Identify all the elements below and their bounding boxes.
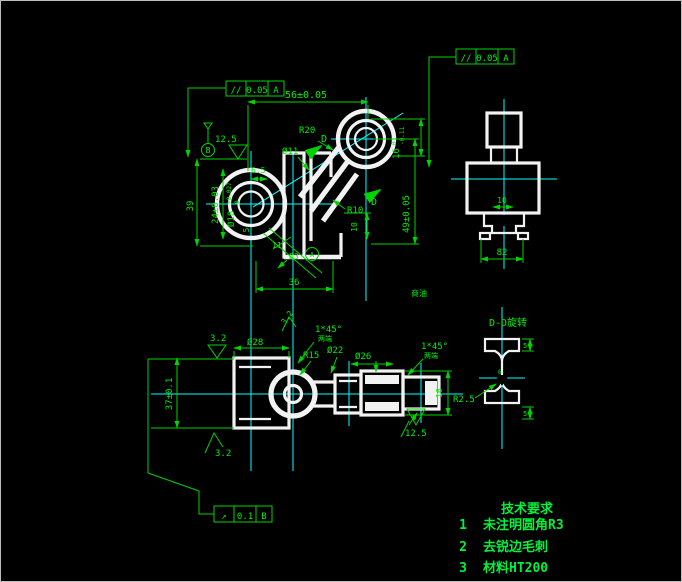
dia-26: Ø26 <box>355 351 371 362</box>
chamfer-2: 1*45° <box>421 342 448 352</box>
bore-upper-tol: +0.027 <box>226 182 233 204</box>
fcf-tr-symbol: // <box>461 54 472 64</box>
fcf-tl-symbol: // <box>231 86 242 96</box>
tech-item-1-text: 未注明圆角R3 <box>482 517 564 533</box>
dim-56: 56±0.05 <box>285 90 327 101</box>
tech-item-2-no: 2 <box>459 540 467 555</box>
fcf-bl-datum: B <box>261 512 266 522</box>
fcf-tr-datum: A <box>503 54 509 64</box>
radius-r15: R15 <box>303 351 319 361</box>
fcf-top-left: // 0.05 A <box>188 81 284 157</box>
dia-11: Ø11 <box>282 146 298 157</box>
dim-49-text: 49±0.05 <box>402 195 412 233</box>
dim-36: 36 <box>289 278 300 288</box>
datum-a-balloon: A <box>306 248 319 261</box>
side-view-outline <box>467 113 539 239</box>
chamfer-1-note: 两端 <box>318 334 332 343</box>
tech-item-2-text: 去锐边毛刺 <box>483 539 548 555</box>
dim-39: 39 <box>186 201 196 212</box>
dim-49: 49±0.05 <box>402 195 412 233</box>
bottom-view-outline <box>234 358 439 428</box>
section-d-label-2: D <box>371 197 377 208</box>
cad-drawing: // 0.05 A // 0.05 A ↗ 0.1 B B A <box>1 1 682 582</box>
radius-r10: R10 <box>347 206 363 216</box>
tech-requirements: 技术要求 1 未注明圆角R3 2 去锐边毛刺 3 材料HT200 <box>459 501 564 576</box>
web-6: 6 <box>498 369 502 376</box>
fcf-bl-value: 0.1 <box>237 512 253 522</box>
roughness-3-2-bottom: 3.2 <box>215 449 231 459</box>
fcf-tr-value: 0.05 <box>476 54 498 64</box>
datum-b-label: B <box>206 146 211 155</box>
dim-10-side: 10 <box>497 196 507 205</box>
flange-5-bottom: 5 <box>523 410 527 418</box>
dim-16-bottom: 16 <box>435 388 444 398</box>
cad-canvas[interactable]: // 0.05 A // 0.05 A ↗ 0.1 B B A <box>0 0 682 582</box>
fcf-top-right: // 0.05 A <box>429 49 514 167</box>
slot-16: 16 <box>392 148 402 159</box>
radius-r20: R20 <box>299 126 315 136</box>
fcf-tl-datum: A <box>273 86 279 96</box>
small-note: 商油 <box>411 288 427 298</box>
dim-82: 82 <box>497 248 508 258</box>
roughness-12-5-top: 12.5 <box>215 135 237 145</box>
dim-24: 24±0.03 <box>211 186 221 224</box>
dim-11: 11 <box>272 241 282 250</box>
dim-37: 37±0.1 <box>165 378 175 411</box>
tech-item-3-text: 材料HT200 <box>483 560 548 576</box>
tech-item-3-no: 3 <box>459 561 467 576</box>
bore-lower-tol: 0 <box>234 200 241 204</box>
chamfer-1: 1*45° <box>315 325 342 335</box>
chamfer-2-note: 两端 <box>424 351 438 360</box>
slot-lower-tol: -0.11 <box>399 127 406 145</box>
section-d-label-1: D <box>321 134 327 145</box>
radius-r2-5: R2.5 <box>453 395 475 405</box>
fcf-tl-value: 0.05 <box>246 86 268 96</box>
tech-item-1-no: 1 <box>459 518 467 533</box>
dim-5: 5 <box>242 227 251 232</box>
flange-5-top: 5 <box>523 342 527 350</box>
slot-upper-tol: 0 <box>391 141 398 145</box>
roughness-3-2-top: 3.2 <box>210 334 226 344</box>
dia-22: Ø22 <box>327 345 343 356</box>
dia-28: Ø28 <box>247 337 263 348</box>
section-dd-title: D-D旋转 <box>489 316 527 329</box>
dim-10-front: 10 <box>350 222 359 232</box>
roughness-12-5-bottom: 12.5 <box>405 429 427 439</box>
oil-hole-dia-3: Ø3 <box>289 251 299 261</box>
datum-b-symbol: B <box>202 123 215 157</box>
dim-6-5: 6.5 <box>251 166 266 175</box>
fcf-bl-symbol: ↗ <box>221 512 226 522</box>
tech-title: 技术要求 <box>501 501 554 517</box>
bore-dia: Ø18 <box>226 211 237 227</box>
